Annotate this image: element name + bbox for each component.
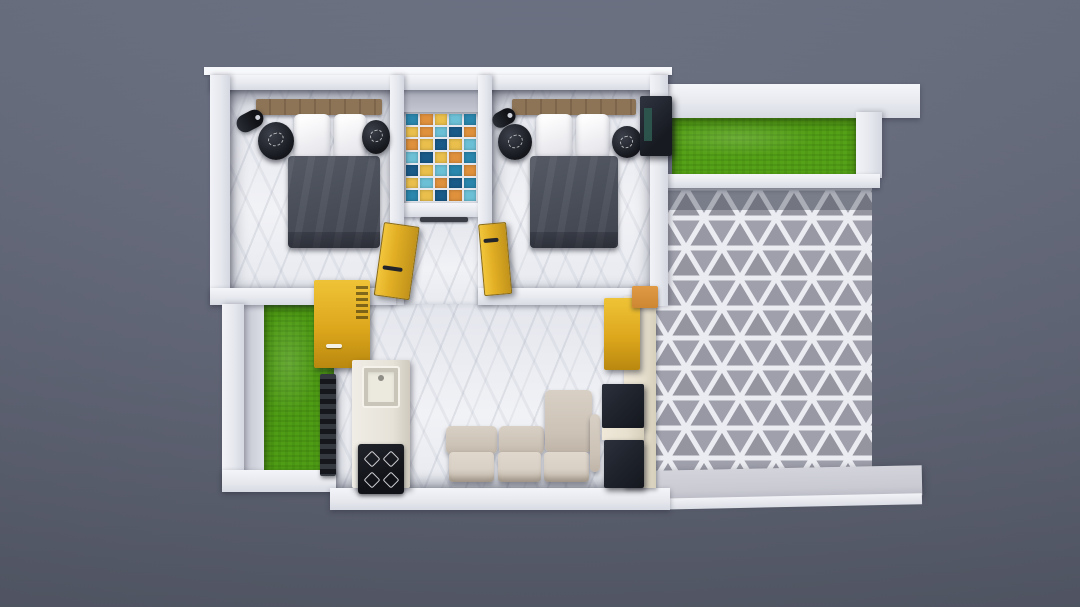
tv-unit-upper (602, 384, 644, 428)
sofa-armrest (590, 414, 600, 472)
sofa-seat-2 (498, 452, 541, 482)
stove-burner (382, 450, 399, 467)
bedroom2-wardrobe (640, 96, 672, 156)
patio-door-sill (632, 286, 658, 308)
mosaic-tile (449, 178, 461, 189)
bed1-side-table-right (362, 120, 390, 154)
scene-background (0, 0, 1080, 607)
top-wall (210, 75, 668, 90)
mosaic-tile (435, 139, 447, 150)
chaise-back (545, 390, 592, 452)
mosaic-tile (420, 114, 432, 125)
courtyard-bottom-wall (222, 470, 336, 492)
bathroom-bottom-wall (404, 203, 478, 217)
mosaic-tile (406, 178, 418, 189)
bed2-side-table-right (612, 126, 642, 158)
tv-cabinet-yellow (604, 298, 640, 370)
mosaic-tile (420, 139, 432, 150)
garden-ledge (662, 174, 880, 188)
mosaic-tile (449, 165, 461, 176)
bed2-duvet (530, 156, 618, 248)
mosaic-tile (435, 152, 447, 163)
mosaic-tile (406, 165, 418, 176)
bed1-side-table-left (258, 122, 294, 160)
mosaic-tile (435, 178, 447, 189)
bathroom-door-track (420, 217, 468, 222)
mosaic-tile (464, 139, 476, 150)
mosaic-tile (435, 114, 447, 125)
mosaic-tile (464, 127, 476, 138)
kitchen-stove (358, 444, 404, 494)
mosaic-tile (435, 127, 447, 138)
mosaic-tile (420, 178, 432, 189)
bed2-side-table-left (498, 124, 532, 160)
bed2-headboard (512, 99, 636, 115)
mosaic-tile (449, 114, 461, 125)
cabinet-vent (356, 286, 368, 320)
mosaic-tile (464, 178, 476, 189)
patio-tile-floor (650, 188, 872, 472)
garden-frame-right (856, 112, 882, 178)
bathroom-mosaic (404, 112, 478, 203)
cabinet-handle (326, 344, 342, 348)
tv-unit-lower (604, 440, 644, 488)
mosaic-tile (464, 190, 476, 201)
kitchen-sink (362, 366, 400, 408)
stove-burner (363, 471, 380, 488)
door1-handle (383, 265, 403, 272)
garden-grass-strip (672, 118, 858, 176)
left-wall-upper (210, 75, 230, 304)
ladder-rack (320, 374, 336, 476)
sofa-seat-3 (544, 452, 589, 482)
courtyard-inner-wall-face (244, 304, 266, 472)
stove-burner (382, 471, 399, 488)
bed2-pillow-left (536, 114, 572, 162)
mosaic-tile (420, 152, 432, 163)
mosaic-tile (449, 190, 461, 201)
tv-shelf (602, 428, 644, 440)
mosaic-tile (406, 152, 418, 163)
bed1-duvet (288, 156, 380, 248)
sofa-back-left (446, 426, 497, 454)
mosaic-tile (435, 165, 447, 176)
mosaic-tile (406, 114, 418, 125)
mosaic-tile (449, 127, 461, 138)
mosaic-tile (406, 127, 418, 138)
left-wall-lower (222, 304, 244, 490)
bed2-pillow-right (576, 114, 609, 162)
hall-cabinet (314, 280, 370, 368)
mosaic-tile (435, 190, 447, 201)
bathroom-back-wall-face (404, 90, 478, 114)
mosaic-tile (406, 139, 418, 150)
sofa-seat-1 (449, 452, 494, 482)
mosaic-tile (464, 152, 476, 163)
stove-burner (363, 450, 380, 467)
mosaic-tile (449, 139, 461, 150)
mosaic-tile (406, 190, 418, 201)
mosaic-tile (420, 127, 432, 138)
sofa-back-right (499, 426, 544, 454)
mosaic-tile (464, 114, 476, 125)
door2-handle (484, 238, 499, 243)
roof-lip (204, 67, 672, 75)
mosaic-tile (420, 190, 432, 201)
mosaic-tile (464, 165, 476, 176)
mosaic-tile (420, 165, 432, 176)
bed1-headboard (256, 99, 382, 115)
mosaic-tile (449, 152, 461, 163)
